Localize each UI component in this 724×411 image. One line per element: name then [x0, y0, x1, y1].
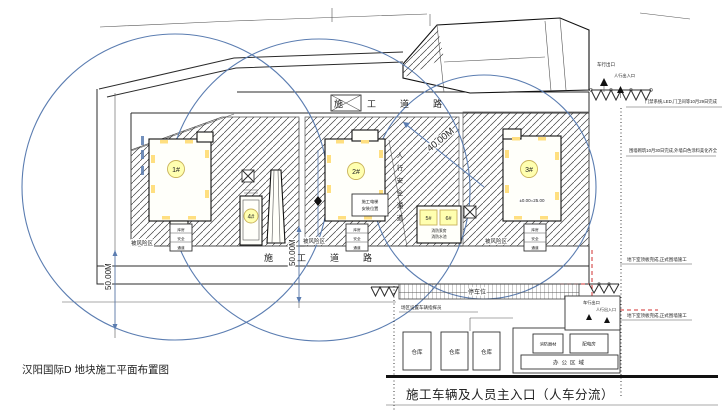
aux-room-label: 库房: [353, 227, 361, 232]
aux-room-label: 通道: [177, 245, 185, 250]
weighbridge-note: 场区设置车辆指挥员: [401, 304, 442, 311]
building-3-elevation: ±0.00=25.00: [519, 198, 545, 203]
aux-room-label: 安全: [531, 236, 539, 241]
left-road-markers: [141, 136, 144, 175]
top-pedestrian-entrance-label: 人行出入口: [614, 72, 635, 79]
parking-label: 停车位: [468, 288, 486, 296]
building-5-6-note-line2: 消防水池: [431, 234, 446, 239]
parking-strip: 停车位: [399, 284, 579, 299]
building-3: 3# ±0.00=25.00: [503, 129, 561, 221]
warehouses: 仓库 仓库 仓库: [403, 332, 500, 370]
aux-room-label: 安全: [177, 236, 185, 241]
building-5-label: 5#: [425, 216, 432, 222]
power-room-label: 配电房: [582, 341, 596, 348]
aux-room-label: 通道: [531, 245, 539, 250]
site-plan-drawing: 40.00M 50.00M 50.00M 施工道路 施工道路 1# 2# 施工电…: [0, 0, 724, 411]
note-basement-1: 地下室顶板完成,正式围墙施工: [627, 256, 687, 263]
note-basement-2: 地下室顶板完成,正式围墙施工: [627, 312, 687, 319]
bottom-vehicle-exit-label: 车行出口: [583, 299, 600, 306]
aux-room-stack-1: 库房 安全 通道: [170, 224, 192, 251]
existing-building: [403, 18, 589, 93]
building-2-note-line2: 安装位置: [362, 205, 379, 212]
walkway-label: 人行安全通道: [393, 152, 403, 227]
bottom-gate-box: 车行出口 人行出入口: [565, 296, 620, 330]
warehouse-label: 仓库: [449, 348, 461, 356]
main-entrance-label: 施工车辆及人员主入口（人车分流）: [406, 387, 614, 402]
road-label-top: 施工道路: [334, 98, 466, 109]
dim-50m-left: 50.00M: [104, 263, 113, 290]
building-5-6: 5# 6# 消防泵房 消防水池: [417, 206, 461, 243]
warehouse-label: 仓库: [411, 348, 423, 356]
building-1-label: 1#: [172, 167, 180, 174]
note-wall-construction: 围墙砌筑10月30日完成,外墙白色涂料美化齐全: [629, 147, 718, 154]
drawing-title: 汉阳国际D 地块施工平面布置图: [22, 363, 169, 376]
warehouse-label: 仓库: [481, 348, 493, 356]
road-label-bottom: 施工道路: [264, 252, 396, 263]
building-4: 4#: [240, 190, 262, 245]
aux-room-label: 库房: [177, 227, 185, 232]
aux-room-label: 库房: [531, 227, 539, 232]
building-1: 1#: [149, 132, 213, 227]
building-6-label: 6#: [445, 216, 452, 222]
building-5-6-note-line1: 消防泵房: [431, 228, 446, 233]
note-access-control: 门禁系统,LED,门卫间等10月29日完成: [645, 98, 718, 105]
risk-zone-label-3: 被风险区: [485, 237, 508, 245]
risk-zone-label-1: 被风险区: [131, 239, 154, 247]
tower-crane-icon: [242, 170, 254, 182]
bottom-pedestrian-entrance-label: 人行出入口: [596, 306, 616, 312]
aux-room-stack-2: 库房 安全 通道: [346, 224, 368, 251]
site-plan-canvas: 40.00M 50.00M 50.00M 施工道路 施工道路 1# 2# 施工电…: [0, 0, 724, 411]
aux-room-label: 安全: [353, 236, 361, 241]
building-3-label: 3#: [525, 167, 533, 174]
building-2-note-line1: 施工电梯: [362, 198, 379, 205]
top-right-gate-area: 车行出口 人行出入口 门禁系统,LED,门卫间等10月29日完成 围墙砌筑10月…: [590, 61, 722, 156]
building-4-label: 4#: [248, 215, 255, 221]
risk-zone-label-2: 被风险区: [303, 237, 326, 245]
office-area-label: 办公区域: [553, 359, 587, 367]
entrance-road-edge: [386, 375, 718, 378]
aux-room-stack-3: 库房 安全 通道: [524, 224, 546, 251]
aux-room-label: 通道: [353, 245, 361, 250]
fire-equipment-label: 消防器材: [540, 341, 557, 348]
building-2-label: 2#: [352, 169, 360, 176]
top-vehicle-exit-label: 车行出口: [597, 61, 615, 68]
tower-crane-icon: [464, 206, 476, 218]
